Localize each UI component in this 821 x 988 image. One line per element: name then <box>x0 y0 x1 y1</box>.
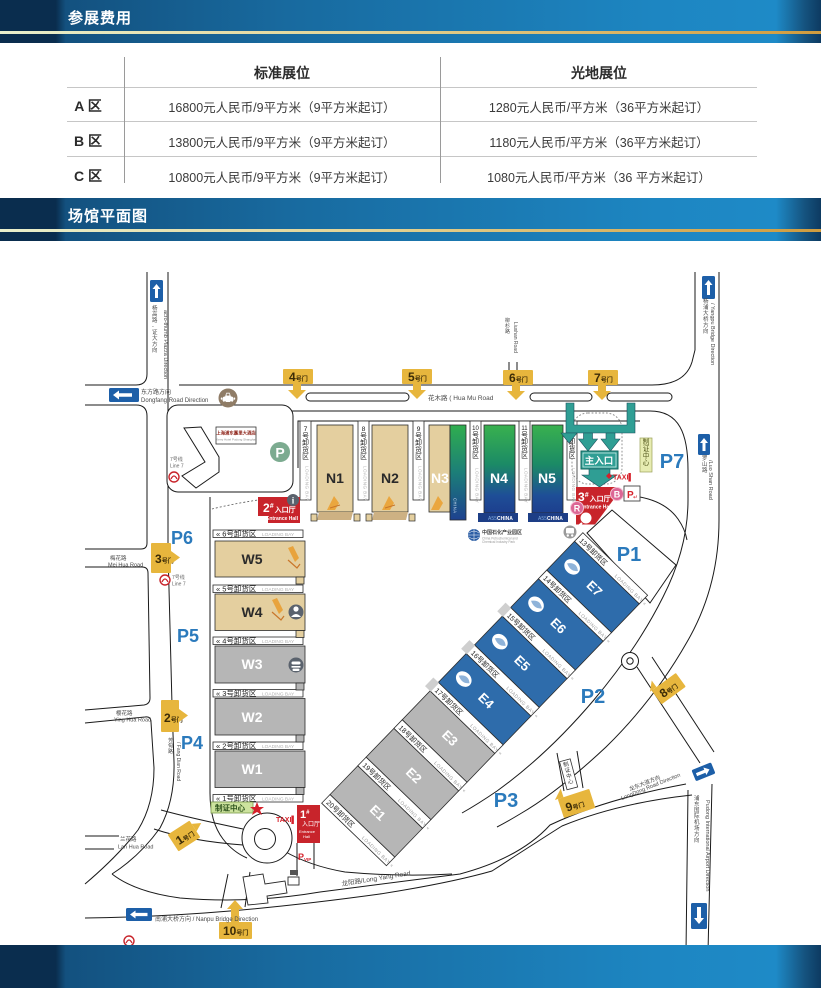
svg-text:LOADING BAY: LOADING BAY <box>305 466 310 501</box>
svg-text:Dongfang Road Direction: Dongfang Road Direction <box>141 398 208 404</box>
svg-text:CHINA: CHINA <box>453 498 458 514</box>
svg-text:Lan Hua Road: Lan Hua Road <box>118 845 153 851</box>
svg-text:LOADING BAY: LOADING BAY <box>524 468 529 503</box>
svg-text:Line 7: Line 7 <box>170 464 184 470</box>
svg-text:W4: W4 <box>242 604 263 620</box>
svg-text:Mei Hua Road: Mei Hua Road <box>108 563 143 569</box>
svg-text:A55: A55 <box>488 516 497 522</box>
svg-text:Hall: Hall <box>303 834 310 839</box>
svg-text:LOADING BAY: LOADING BAY <box>418 466 423 501</box>
svg-text:P: P <box>275 445 284 461</box>
svg-text:杨浦大桥方向: 杨浦大桥方向 <box>703 297 709 335</box>
svg-text:W2: W2 <box>242 709 263 725</box>
svg-text:« 4号卸货区: « 4号卸货区 <box>216 636 257 646</box>
svg-text:P2: P2 <box>581 686 605 708</box>
svg-text:制证中心: 制证中心 <box>643 437 650 467</box>
svg-text:兰花路: 兰花路 <box>120 835 137 843</box>
svg-text:/ Yangpu Bridge Direction: / Yangpu Bridge Direction <box>709 303 715 365</box>
svg-text:Liushan Road: Liushan Road <box>512 322 518 353</box>
svg-text:Pudong International Airport D: Pudong International Airport Direction <box>704 800 710 891</box>
svg-text:10号卸货区: 10号卸货区 <box>472 426 479 460</box>
svg-text:花木路 ( Hua Mu Road: 花木路 ( Hua Mu Road <box>428 393 494 402</box>
svg-text:LOADING BAY: LOADING BAY <box>262 692 295 698</box>
svg-text:N2: N2 <box>381 470 399 486</box>
svg-text:TAXI▌: TAXI▌ <box>276 815 296 825</box>
svg-text:CHINA: CHINA <box>497 516 513 522</box>
svg-text:Entrance Hall: Entrance Hall <box>266 516 299 522</box>
svg-text:P4: P4 <box>181 733 203 753</box>
svg-text:N4: N4 <box>490 470 508 486</box>
svg-text:Ying Hua Road: Ying Hua Road <box>114 718 151 724</box>
svg-text:W3: W3 <box>242 656 263 672</box>
svg-text:主入口: 主入口 <box>585 455 614 467</box>
svg-text:LOADING BAY: LOADING BAY <box>571 468 576 503</box>
svg-text:P5: P5 <box>177 626 199 646</box>
svg-text:LOADING BAY: LOADING BAY <box>262 797 295 803</box>
svg-text:浦东国际机场方向: 浦东国际机场方向 <box>694 794 700 844</box>
svg-text:南浦大桥方向 / Nanpu Bridge Directio: 南浦大桥方向 / Nanpu Bridge Direction <box>155 915 258 923</box>
svg-text:入口厅: 入口厅 <box>302 821 320 828</box>
svg-text:« 3号卸货区: « 3号卸货区 <box>216 688 257 698</box>
svg-text:A55: A55 <box>538 516 547 522</box>
svg-text:Entrance Hall: Entrance Hall <box>580 505 613 511</box>
svg-text:P6: P6 <box>171 528 193 548</box>
svg-text:« 2号卸货区: « 2号卸货区 <box>216 741 257 751</box>
svg-text:LOADING BAY: LOADING BAY <box>262 587 295 593</box>
svg-text:acro-thumb Plazza Direction: acro-thumb Plazza Direction <box>162 310 168 379</box>
svg-text:P7: P7 <box>660 451 684 473</box>
svg-text:N5: N5 <box>538 470 556 486</box>
svg-text:W1: W1 <box>242 761 263 777</box>
svg-text:↵: ↵ <box>633 495 638 501</box>
svg-text:7号线: 7号线 <box>172 574 185 581</box>
svg-text:Line 7: Line 7 <box>172 582 186 588</box>
svg-text:上海浦东嘉里大酒店: 上海浦东嘉里大酒店 <box>216 430 256 437</box>
svg-text:制证中心: 制证中心 <box>215 803 245 813</box>
svg-text:N1: N1 <box>326 470 344 486</box>
svg-text:« 6号卸货区: « 6号卸货区 <box>216 529 257 539</box>
svg-text:东方路方向: 东方路方向 <box>141 388 171 396</box>
svg-text:W5: W5 <box>242 551 263 567</box>
svg-text:« 1号卸货区: « 1号卸货区 <box>216 793 257 803</box>
svg-text:P3: P3 <box>494 790 518 812</box>
svg-text:LOADING BAY: LOADING BAY <box>475 468 480 503</box>
svg-text:Chemical Industry Park: Chemical Industry Park <box>482 540 515 544</box>
svg-text:Kerry Hotel Pudong Shanghai: Kerry Hotel Pudong Shanghai <box>216 438 256 442</box>
svg-text:R: R <box>574 504 581 514</box>
svg-text:中国石化产业园区: 中国石化产业园区 <box>482 529 522 536</box>
svg-text:柳杉路: 柳杉路 <box>505 317 510 335</box>
svg-text:« 5号卸货区: « 5号卸货区 <box>216 584 257 594</box>
svg-text:LOADING BAY: LOADING BAY <box>262 639 295 645</box>
svg-text:/ Fang Dian Road: / Fang Dian Road <box>175 742 181 781</box>
svg-text:N3: N3 <box>431 470 449 486</box>
svg-text:TAXI▌: TAXI▌ <box>613 473 633 483</box>
svg-text:11号卸货区: 11号卸货区 <box>521 426 528 460</box>
svg-text:P1: P1 <box>617 544 641 566</box>
svg-text:LOADING BAY: LOADING BAY <box>262 532 295 538</box>
svg-text:杨高路-证大方向: 杨高路-证大方向 <box>152 304 158 354</box>
svg-text:LOADING BAY: LOADING BAY <box>363 466 368 501</box>
svg-text:/Luo Shan Road: /Luo Shan Road <box>707 460 713 500</box>
svg-text:梅花路: 梅花路 <box>110 554 127 562</box>
svg-text:芳甸路: 芳甸路 <box>168 737 173 755</box>
svg-text:7号线: 7号线 <box>170 456 183 463</box>
svg-text:CHINA: CHINA <box>547 516 563 522</box>
svg-text:B: B <box>614 490 621 500</box>
svg-text:PVIP: PVIP <box>298 852 311 862</box>
svg-text:樱花路: 樱花路 <box>116 709 133 717</box>
svg-text:LOADING BAY: LOADING BAY <box>262 744 295 750</box>
